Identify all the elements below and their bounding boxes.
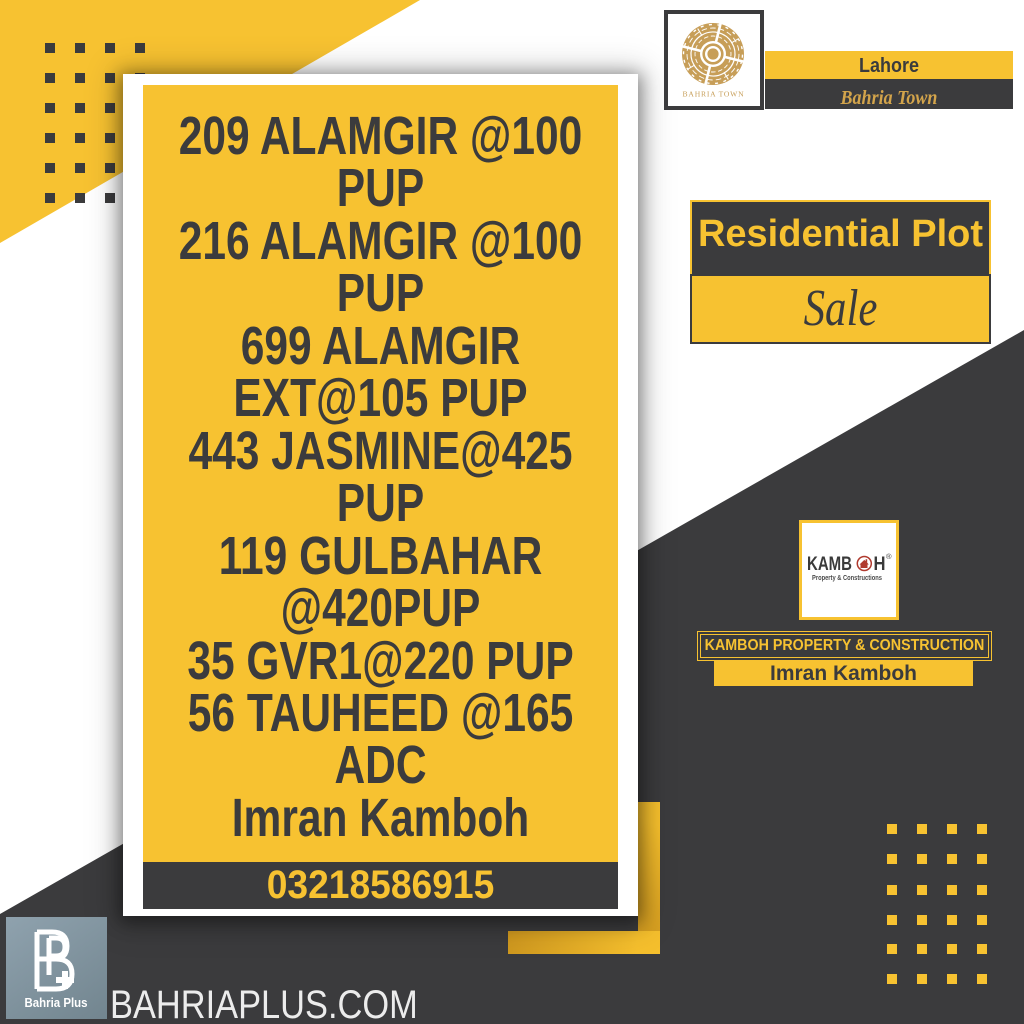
svg-text:Bahria Plus: Bahria Plus	[25, 995, 88, 1010]
svg-text:H: H	[874, 553, 886, 575]
svg-text:KAMB: KAMB	[807, 553, 852, 575]
svg-text:®: ®	[886, 552, 892, 561]
svg-text:BAHRIA TOWN: BAHRIA TOWN	[683, 90, 745, 99]
svg-text:Property & Constructions: Property & Constructions	[812, 575, 882, 582]
